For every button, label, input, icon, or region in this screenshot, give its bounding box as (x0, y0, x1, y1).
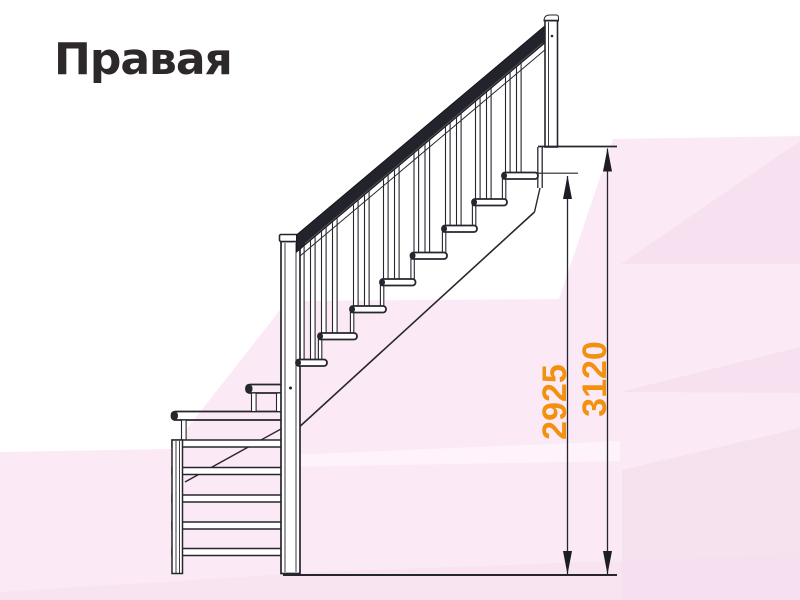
newel-post (280, 235, 302, 574)
baluster (457, 113, 462, 225)
winder-step-edge (172, 522, 285, 529)
tread (350, 306, 386, 313)
landing-riser (538, 147, 542, 188)
tread (472, 199, 507, 206)
riser (350, 313, 353, 334)
staircase-drawing: 2925 3120 (0, 0, 800, 600)
baluster (395, 166, 400, 279)
baluster (333, 218, 338, 333)
tread (502, 173, 538, 180)
baluster (446, 123, 451, 226)
tread-nose (350, 306, 356, 313)
riser (318, 340, 321, 360)
fixing-dot (551, 35, 554, 38)
winder-step-edge (172, 495, 285, 502)
baluster (506, 72, 511, 172)
winder-baluster (252, 393, 257, 412)
winder-baluster (182, 420, 187, 440)
winder-step-edge (172, 549, 285, 556)
fixing-dot (289, 387, 292, 390)
tread-nose (502, 173, 508, 180)
tread (318, 333, 357, 340)
baluster (311, 236, 316, 359)
tread (442, 226, 477, 233)
baluster (384, 175, 389, 279)
baluster (476, 97, 481, 199)
baluster (517, 63, 522, 173)
riser (442, 232, 445, 253)
tread-nose (410, 253, 416, 260)
baluster (414, 149, 419, 252)
background-facets (0, 136, 800, 600)
tread-nose (442, 226, 448, 233)
riser (380, 286, 383, 307)
riser (502, 179, 505, 199)
baluster (487, 88, 492, 199)
winder-step-edge (172, 440, 285, 447)
riser (411, 259, 414, 279)
riser (472, 206, 475, 226)
top-newel-post (544, 15, 559, 147)
tread (411, 253, 448, 260)
winder-post (172, 440, 183, 574)
tread-nose (318, 333, 324, 340)
staircase-diagram-canvas: Правая (0, 0, 800, 600)
baluster (365, 191, 370, 306)
baluster (322, 227, 327, 333)
arrow-up-icon (563, 176, 572, 200)
tread-nose (472, 199, 478, 206)
baluster (425, 140, 430, 253)
dimension-label-2925: 2925 (536, 364, 574, 440)
dimension-label-3120: 3120 (576, 341, 614, 417)
tread-nose (380, 279, 386, 286)
winder-step-edge (172, 468, 285, 475)
tread-nose (296, 360, 302, 367)
tread (380, 279, 416, 286)
baluster (354, 200, 359, 306)
